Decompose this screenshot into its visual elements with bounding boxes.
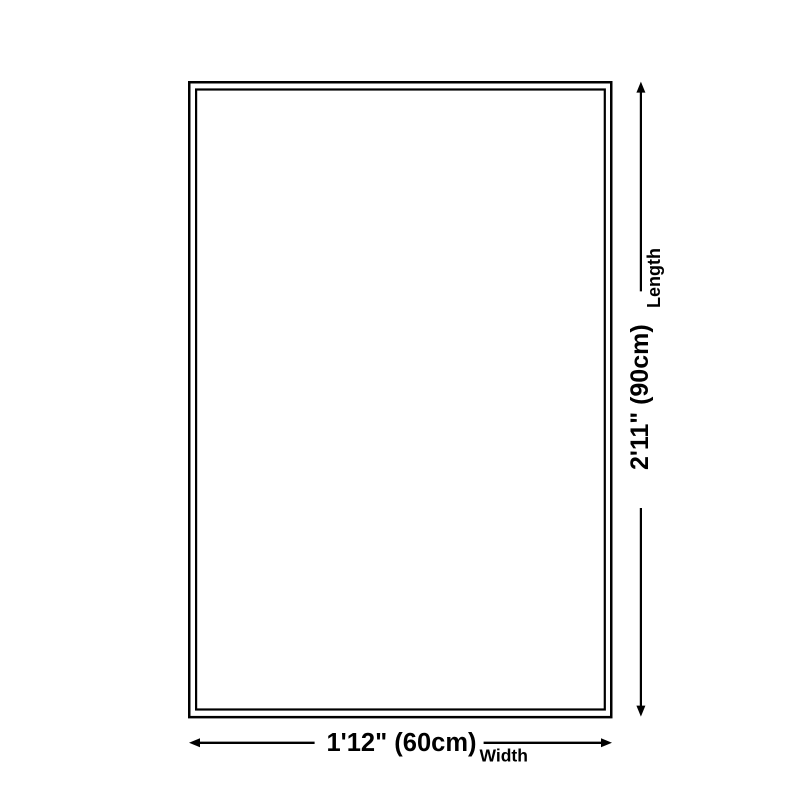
svg-text:2'11" (90cm): 2'11" (90cm) xyxy=(626,324,654,470)
svg-text:1'12" (60cm): 1'12" (60cm) xyxy=(327,729,477,757)
svg-text:Width: Width xyxy=(480,746,528,766)
svg-text:Length: Length xyxy=(644,248,664,308)
